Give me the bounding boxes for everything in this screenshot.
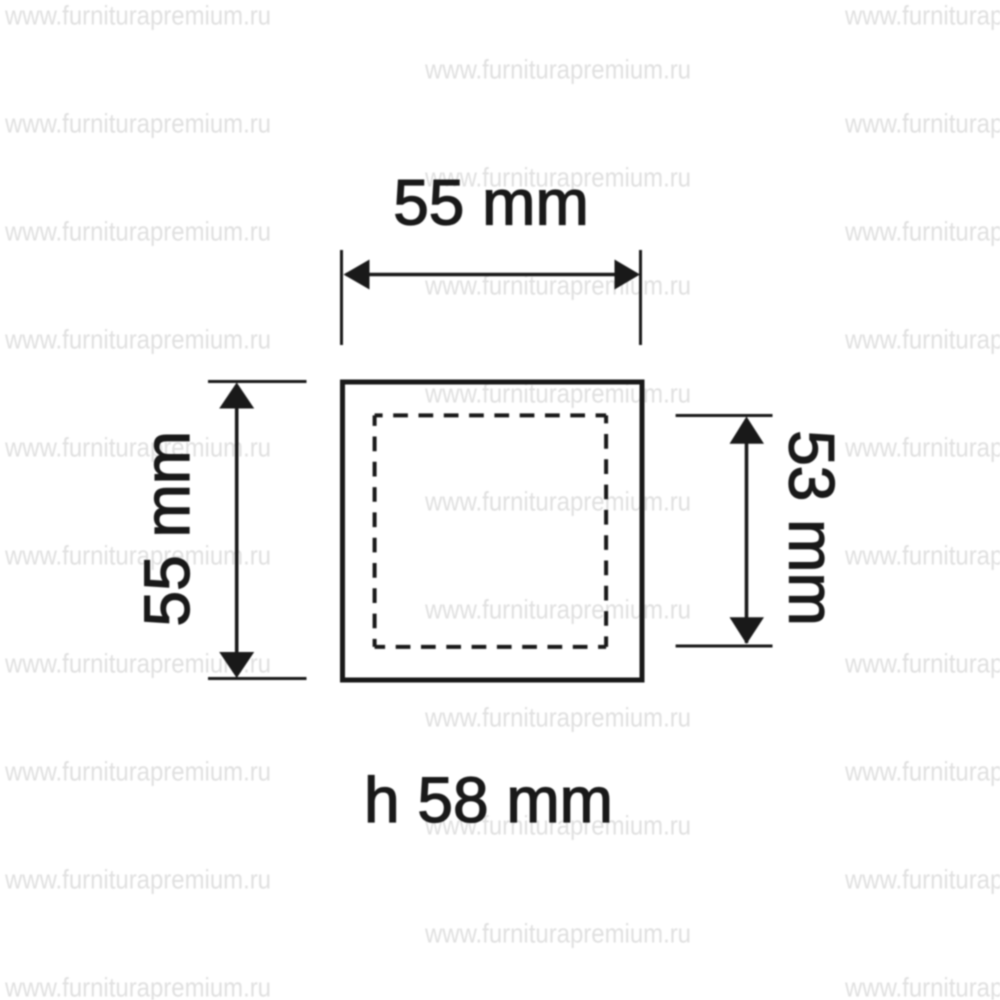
svg-text:www.furniturapremium.ru: www.furniturapremium.ru [424, 703, 691, 733]
svg-text:h 58 mm: h 58 mm [364, 764, 613, 836]
svg-text:www.furniturapremium.ru: www.furniturapremium.ru [844, 1, 1000, 31]
svg-text:55 mm: 55 mm [131, 431, 203, 627]
svg-text:www.furniturapremium.ru: www.furniturapremium.ru [844, 649, 1000, 679]
svg-text:www.furniturapremium.ru: www.furniturapremium.ru [4, 217, 271, 247]
svg-text:55 mm: 55 mm [393, 167, 589, 239]
svg-text:www.furniturapremium.ru: www.furniturapremium.ru [4, 973, 271, 1000]
svg-text:www.furniturapremium.ru: www.furniturapremium.ru [844, 865, 1000, 895]
svg-text:53 mm: 53 mm [776, 430, 848, 626]
svg-text:www.furniturapremium.ru: www.furniturapremium.ru [4, 325, 271, 355]
svg-text:www.furniturapremium.ru: www.furniturapremium.ru [424, 487, 691, 517]
svg-text:www.furniturapremium.ru: www.furniturapremium.ru [844, 757, 1000, 787]
svg-text:www.furniturapremium.ru: www.furniturapremium.ru [4, 1, 271, 31]
svg-text:www.furniturapremium.ru: www.furniturapremium.ru [844, 325, 1000, 355]
svg-text:www.furniturapremium.ru: www.furniturapremium.ru [844, 433, 1000, 463]
svg-text:www.furniturapremium.ru: www.furniturapremium.ru [4, 865, 271, 895]
svg-text:www.furniturapremium.ru: www.furniturapremium.ru [844, 217, 1000, 247]
svg-text:www.furniturapremium.ru: www.furniturapremium.ru [424, 919, 691, 949]
svg-text:www.furniturapremium.ru: www.furniturapremium.ru [4, 757, 271, 787]
svg-text:www.furniturapremium.ru: www.furniturapremium.ru [844, 541, 1000, 571]
svg-text:www.furniturapremium.ru: www.furniturapremium.ru [844, 109, 1000, 139]
svg-text:www.furniturapremium.ru: www.furniturapremium.ru [844, 973, 1000, 1000]
svg-text:www.furniturapremium.ru: www.furniturapremium.ru [4, 109, 271, 139]
svg-text:www.furniturapremium.ru: www.furniturapremium.ru [424, 55, 691, 85]
svg-text:www.furniturapremium.ru: www.furniturapremium.ru [424, 595, 691, 625]
